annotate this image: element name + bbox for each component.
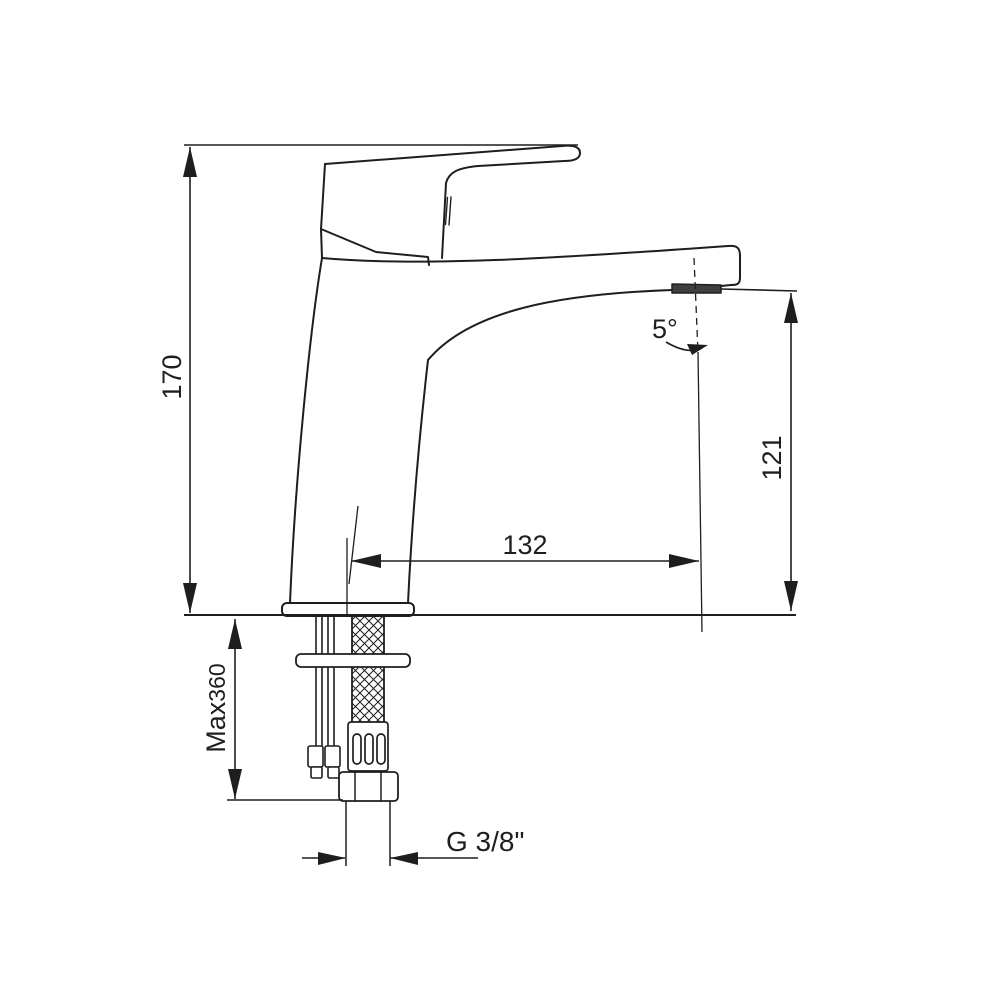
body-axis-tilted	[349, 506, 358, 584]
aerator-centerline	[698, 352, 702, 632]
faucet-dimension-drawing: 170 121 132 5° Max360 G 3/8"	[0, 0, 1000, 1000]
ext-line-aerator	[721, 289, 797, 291]
ext-lines-thread	[346, 801, 390, 866]
body-right-edge	[408, 360, 428, 603]
spout-top-edge	[322, 246, 728, 262]
arrow-max360-top	[228, 619, 242, 649]
label-max-hose: Max360	[201, 663, 231, 752]
label-aerator-angle: 5°	[652, 314, 678, 344]
faucet-technical-drawing-page: 170 121 132 5° Max360 G 3/8"	[0, 0, 1000, 1000]
arrow-121-top	[784, 293, 798, 323]
label-spout-outlet-height: 121	[757, 435, 787, 480]
arrow-121-bottom	[784, 581, 798, 611]
washer-plate	[296, 654, 410, 667]
aerator	[672, 284, 721, 293]
arrow-170-bottom	[183, 583, 197, 613]
arrow-132-left	[351, 554, 381, 568]
dimension-arrowheads	[183, 147, 798, 865]
handle-lever	[321, 146, 580, 265]
label-connection-thread: G 3/8"	[446, 826, 524, 857]
mounting-studs	[308, 616, 340, 778]
braided-hose	[352, 616, 384, 723]
dimension-lines	[184, 145, 797, 866]
faucet-outline	[282, 146, 740, 801]
arrow-thread-right	[390, 852, 418, 865]
dimension-labels: 170 121 132 5° Max360 G 3/8"	[157, 314, 787, 857]
label-max-hose-value: 360	[204, 663, 230, 701]
label-max-hose-prefix: Max	[201, 701, 231, 753]
body-left-edge	[290, 258, 322, 603]
arrow-170-top	[183, 147, 197, 177]
aerator-centerline-dashed	[694, 258, 698, 352]
spout-end	[721, 246, 740, 286]
hex-nut	[339, 772, 398, 801]
arrow-max360-bottom	[228, 769, 242, 799]
label-spout-reach: 132	[502, 530, 547, 560]
label-total-height: 170	[157, 354, 187, 399]
arrow-thread-left	[318, 852, 346, 865]
arrow-132-right	[669, 554, 699, 568]
spout-underside	[428, 290, 672, 360]
hose-connector	[348, 722, 388, 771]
handle-seam	[446, 197, 452, 225]
